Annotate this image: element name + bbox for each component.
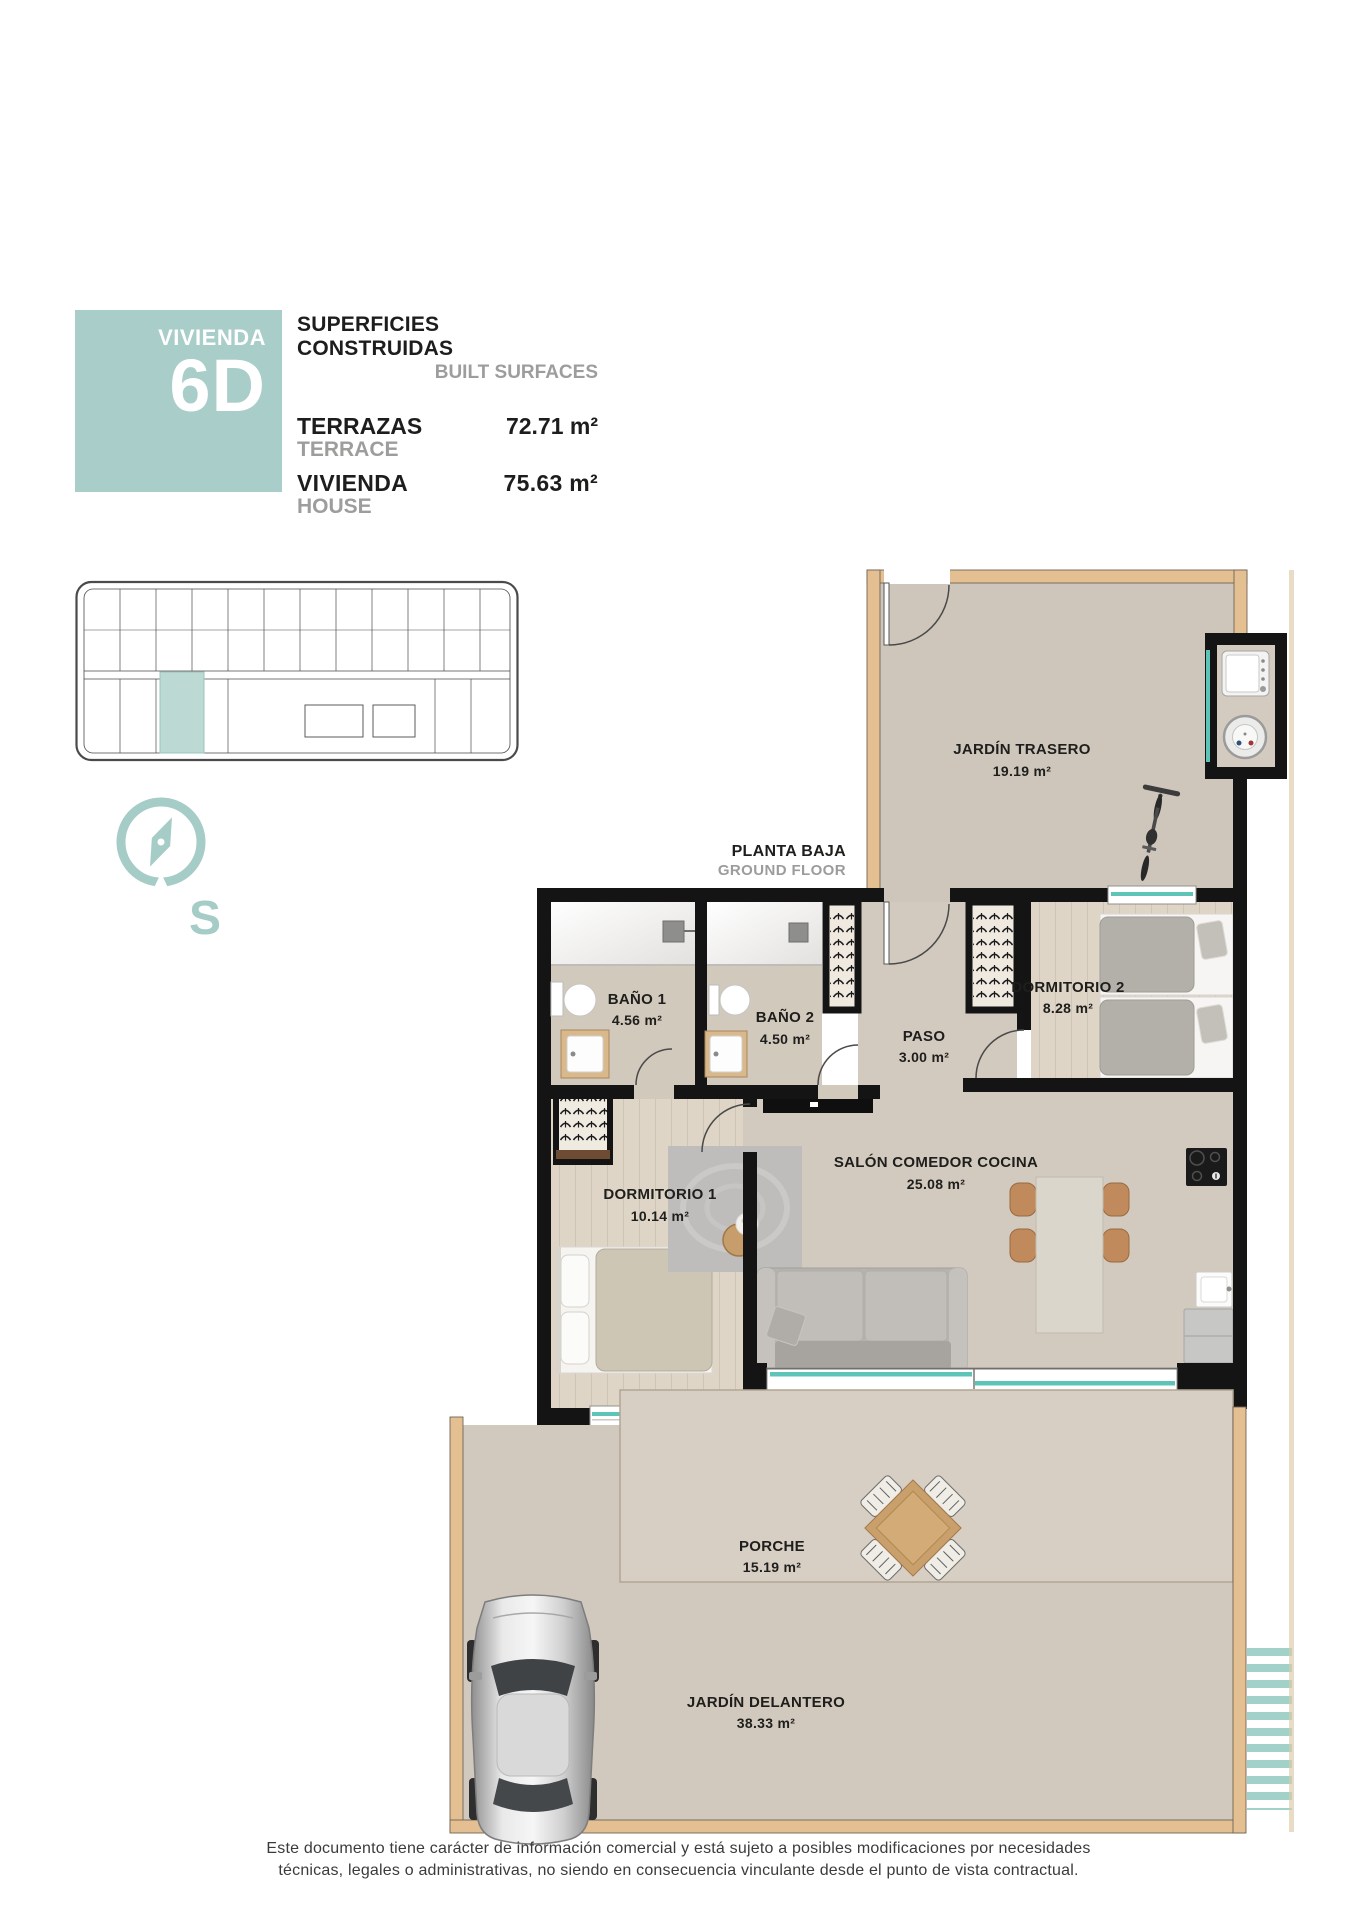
tv-console: [763, 1097, 873, 1113]
back-garden: [867, 568, 1247, 890]
sliding-glass-door: [767, 1368, 1177, 1390]
floor-plan-canvas: S PLANTA BAJA GROUND FLOOR: [0, 0, 1357, 1920]
disclaimer-line-1: Este documento tiene carácter de informa…: [0, 1838, 1357, 1860]
floor-label-es: PLANTA BAJA: [732, 843, 847, 860]
pergola-stripes: [1247, 1640, 1292, 1810]
water-heater-icon: [1224, 716, 1266, 758]
disclaimer: Este documento tiene carácter de informa…: [0, 1838, 1357, 1883]
room-label-dormitorio1: DORMITORIO 1: [603, 1186, 716, 1203]
cooktop-icon: [1186, 1148, 1227, 1186]
utility-closet: [1205, 633, 1287, 779]
entrance-door-leaf: [884, 902, 889, 964]
toilet-tank: [551, 982, 563, 1016]
sofa: [757, 1268, 967, 1372]
room-label-salon: SALÓN COMEDOR COCINA: [834, 1153, 1038, 1171]
floor-label-en: GROUND FLOOR: [718, 862, 846, 879]
room-area-bano2: 4.50 m²: [760, 1031, 810, 1047]
room-area-salon: 25.08 m²: [907, 1176, 965, 1192]
fridge-icon: [1184, 1309, 1233, 1363]
kitchen-sink-icon: [1196, 1272, 1232, 1307]
highlighted-unit: [160, 672, 204, 753]
room-label-porche: PORCHE: [739, 1538, 805, 1555]
toilet-bowl: [564, 984, 596, 1016]
shower-drain: [663, 921, 684, 942]
toilet-bowl: [720, 985, 750, 1015]
compass-icon: S: [121, 802, 221, 945]
room-label-bano2: BAÑO 2: [756, 1008, 814, 1026]
room-label-jardin-delantero: JARDÍN DELANTERO: [687, 1694, 845, 1711]
shower-drain: [789, 923, 808, 942]
dining-table: [1036, 1177, 1103, 1333]
property-boundary: [1289, 570, 1294, 1832]
room-area-dormitorio2: 8.28 m²: [1043, 1000, 1093, 1016]
room-area-porche: 15.19 m²: [743, 1559, 801, 1575]
room-label-dormitorio2: DORMITORIO 2: [1011, 979, 1124, 996]
washing-machine-icon: [1222, 651, 1269, 696]
room-area-jardin-delantero: 38.33 m²: [737, 1715, 795, 1731]
disclaimer-line-2: técnicas, legales o administrativas, no …: [0, 1860, 1357, 1882]
room-area-bano1: 4.56 m²: [612, 1012, 662, 1028]
garden-gate-leaf: [884, 583, 889, 645]
room-label-bano1: BAÑO 1: [608, 990, 666, 1008]
compass-south-label: S: [189, 892, 221, 945]
site-overview-map: [77, 582, 518, 760]
bed-single-2-dormitorio2: [1100, 997, 1233, 1078]
car-icon: [467, 1595, 599, 1844]
room-area-dormitorio1: 10.14 m²: [631, 1208, 689, 1224]
room-area-paso: 3.00 m²: [899, 1049, 949, 1065]
floorplan-page: VIVIENDA 6D SUPERFICIES CONSTRUIDAS BUIL…: [0, 0, 1357, 1920]
room-label-paso: PASO: [903, 1028, 946, 1045]
room-area-jardin-trasero: 19.19 m²: [993, 763, 1051, 779]
toilet-tank: [709, 985, 719, 1015]
utility-window: [1206, 650, 1210, 762]
room-label-jardin-trasero: JARDÍN TRASERO: [953, 741, 1091, 758]
